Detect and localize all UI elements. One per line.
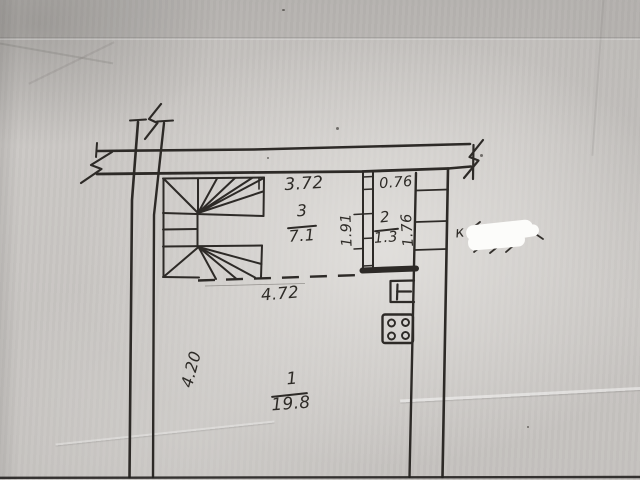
water-heater-icon: [391, 281, 415, 303]
handwritten-remnant: к: [449, 224, 471, 242]
room3-area: 7.1: [282, 226, 321, 245]
dim-room2-width: 0.76: [375, 174, 418, 192]
room2-number: 2: [373, 209, 397, 227]
flue-wall-ticks: [415, 190, 448, 251]
room3-number: 3: [289, 202, 314, 220]
room2-area: 1.3: [370, 229, 403, 246]
floor-plan-photo: 3.72 3 7.1 0.76 2 1.3 1.76 1.91 4.72 4.2…: [0, 0, 640, 480]
staircase: [163, 178, 264, 280]
room1-area: 19.8: [265, 394, 316, 415]
dim-room2-depth-right: 1.76: [399, 206, 418, 253]
dim-hall-opening: 4.72: [253, 282, 306, 304]
lower-winder-fan: [164, 247, 262, 279]
stove-icon: [383, 315, 414, 344]
room1-number: 1: [279, 370, 304, 390]
dim-room2-depth-left: 1.91: [339, 207, 357, 254]
upper-winder-fan: [164, 178, 263, 213]
whiteout-correction: [465, 219, 543, 253]
photo-bottom-edge: [0, 477, 640, 478]
